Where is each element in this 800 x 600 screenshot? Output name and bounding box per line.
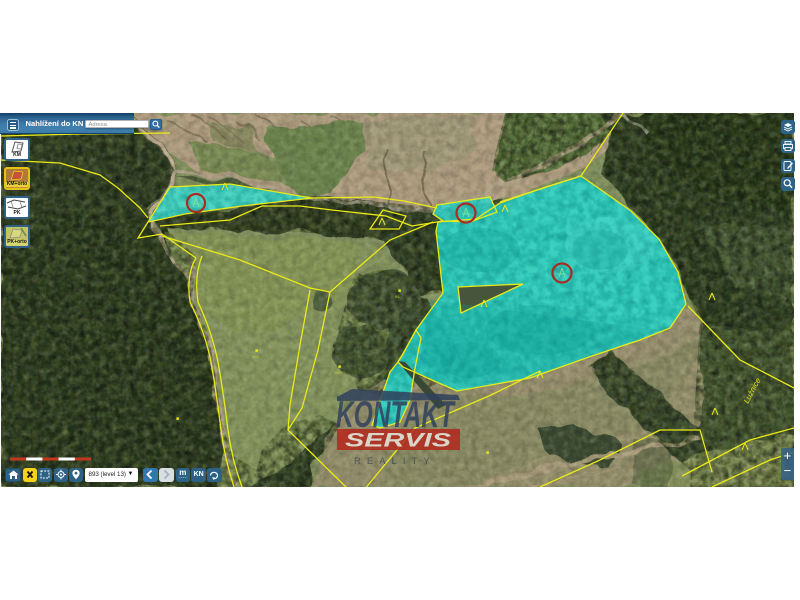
- svg-text:■: ■: [486, 450, 489, 456]
- svg-text:■: ■: [338, 364, 341, 370]
- svg-text:REALITY: REALITY: [354, 456, 436, 467]
- svg-text:■: ■: [398, 288, 401, 294]
- svg-text:10/3: 10/3: [335, 371, 342, 375]
- svg-text:10/2: 10/2: [252, 355, 259, 359]
- svg-text:■: ■: [255, 348, 258, 354]
- svg-text:9/1: 9/1: [395, 295, 400, 299]
- svg-text:SERVIS: SERVIS: [345, 431, 451, 452]
- svg-text:KONTAKT: KONTAKT: [336, 394, 456, 435]
- svg-text:■: ■: [176, 416, 179, 422]
